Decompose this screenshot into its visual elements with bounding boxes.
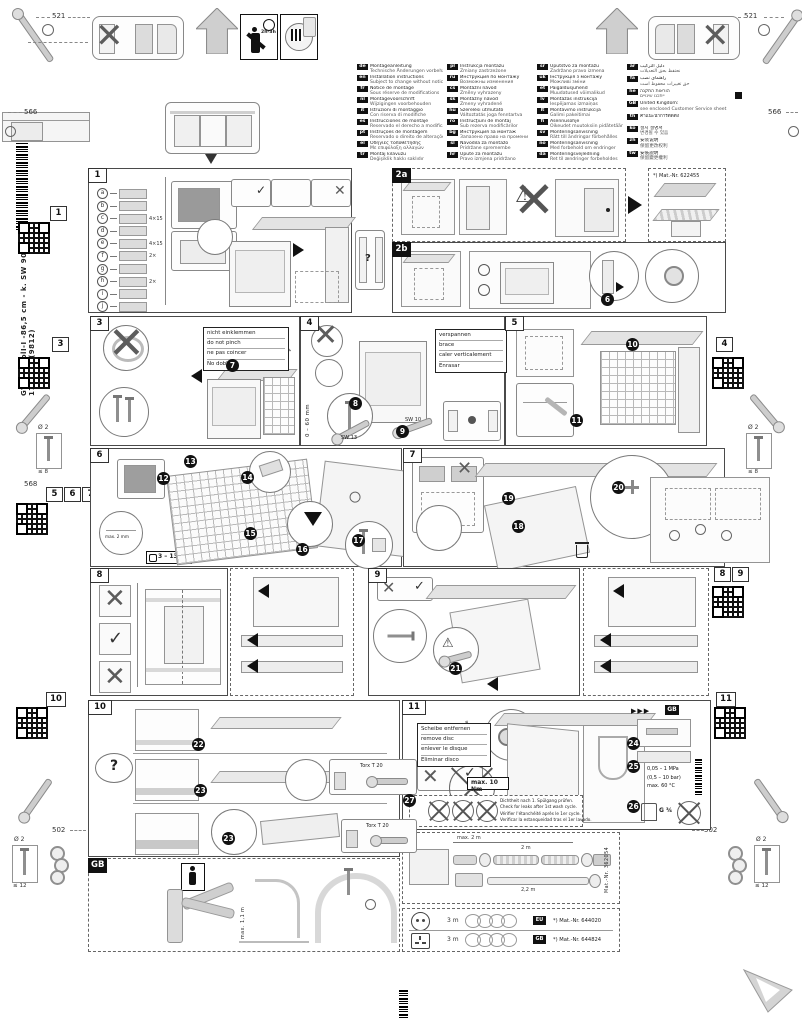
language-code-badge: de <box>357 64 368 70</box>
language-code-badge: hr <box>447 152 458 158</box>
language-code-badge: it <box>357 108 368 114</box>
screw-head-icon <box>758 24 770 36</box>
screw-icon <box>765 851 768 875</box>
language-entry: hrUpute za montažuPravo izmjena pridržan… <box>447 152 533 163</box>
language-lines: Upute za montažuPravo izmjena pridržano <box>460 152 516 163</box>
panel-2a-tab: 2a <box>392 168 411 183</box>
language-entry: daMonteringsvejledningRet til ændringer … <box>537 152 623 163</box>
barcode-vertical <box>16 142 28 230</box>
cube-wrong-1: ✕ <box>99 585 131 617</box>
step-24-marker: 24 <box>627 737 640 750</box>
check-icon: ✓ <box>414 580 425 593</box>
language-note: Změny vyhrazeny <box>460 91 501 96</box>
counter-line <box>3 120 89 121</box>
language-entry: ko설치 설명서변경될 수 있음 <box>627 126 727 138</box>
language-lines: PaigaldusjuhendMuudatused võimalikud <box>550 86 605 97</box>
floor-line <box>239 941 309 943</box>
language-lines: Montavimo instrukcijaGalimi pakeitimai <box>550 108 601 119</box>
dim-dash <box>36 17 50 18</box>
dashed-floor-zone <box>295 271 339 303</box>
cabinet-door <box>226 115 252 147</box>
pressure-line-1: 0,05 – 1 MPa <box>647 765 681 774</box>
screw-head-icon <box>478 284 490 296</box>
barcode-small-bottom <box>399 988 408 1018</box>
step-23b-marker: 23 <box>222 832 235 845</box>
door-profile-right <box>375 237 383 283</box>
leak-note-lines: Dichtheit nach 1. Spülgang prüfen. Check… <box>500 798 592 823</box>
language-note: Zmeny vyhradené <box>460 102 502 107</box>
check-icon: ✓ <box>256 184 266 196</box>
panel-types-box-right: ✕ <box>648 16 740 60</box>
screw-head-icon <box>721 530 732 541</box>
torx-inset-1: Torx T 20 <box>329 759 417 795</box>
language-lines: Instrucciones de montajeReservado el der… <box>370 119 443 130</box>
dim-566-right: 566 <box>768 108 781 116</box>
leader-line <box>110 193 117 194</box>
language-code-badge: GB <box>627 101 638 107</box>
language-lines: Инструкция за монтажЗапазено право на пр… <box>460 130 528 141</box>
leak-line-es: Verificar la estanqueidad tras el 1er la… <box>500 817 592 823</box>
step-7-marker: 7 <box>226 359 239 372</box>
cross-icon: ✕ <box>95 19 124 53</box>
language-lines: Montāžas instrukcijaIespējamas izmaiņas <box>550 97 598 108</box>
language-note: حق تغییرات محفوظ است <box>640 82 689 87</box>
language-note: Reservado el derecho a modificaciones <box>370 124 443 129</box>
corner-detail-inset <box>516 383 574 437</box>
gb-ref-arrows: ▶▶▶ <box>631 707 650 715</box>
warning-triangle-icon: ⚠ <box>442 636 454 651</box>
arrow-icon <box>613 584 624 598</box>
language-entry: deMontageanleitungTechnische Änderungen … <box>357 64 443 75</box>
language-note: Sous réserve de modifications <box>370 91 439 96</box>
language-code-badge: nl <box>357 97 368 103</box>
language-lines: MonteringsvejledningRet til ændringer fo… <box>550 152 618 163</box>
tap-piece-sketch <box>455 873 483 887</box>
leader-line <box>110 269 117 270</box>
wood-panel-icon <box>677 24 695 54</box>
divider-line <box>165 177 166 305</box>
language-lines: MonteringsanvisningMed forbehold om endr… <box>550 141 616 152</box>
screw-dia-label: Ø 2 <box>756 836 766 843</box>
corner-detail-circle <box>211 809 257 855</box>
language-column-1: deMontageanleitungTechnische Änderungen … <box>357 64 443 163</box>
language-note: Zmiany zastrzeżone <box>460 69 506 74</box>
plinth-variant-1 <box>135 709 199 751</box>
language-note: Pridržane spremembe <box>460 146 511 151</box>
detail-circle-feet <box>99 387 149 437</box>
dishwasher-iso <box>207 379 261 439</box>
cross-icon: ✕ <box>108 322 145 366</box>
screw-head-icon <box>478 264 490 276</box>
max-height-label: max. 1,1 m <box>241 887 246 939</box>
qr-scan-box <box>280 14 318 60</box>
language-note: Zadržano pravo izmena <box>550 69 605 74</box>
door-panel-tilted <box>484 486 590 572</box>
margin-tab-5: 5 <box>46 487 63 502</box>
language-lines: Montážní návodZměny vyhrazeny <box>460 86 501 97</box>
language-entry: etPaigaldusjuhendMuudatused võimalikud <box>537 86 623 97</box>
language-note: Subject to change without notice <box>370 80 443 85</box>
screwdriver-icon <box>376 837 408 844</box>
arrow-left-icon <box>487 677 498 691</box>
step-6-marker: 6 <box>601 293 614 306</box>
torx-label-2: Torx T 20 <box>366 823 389 831</box>
corrugated-hose-1 <box>493 855 539 865</box>
hose-dim-top: max. 2 m <box>457 835 481 841</box>
step-15-marker: 15 <box>244 527 257 540</box>
screw-spec-box <box>754 845 780 883</box>
dim-line <box>453 842 573 843</box>
language-entry: tw安裝說明保留變更權利 <box>627 151 727 163</box>
language-code-badge: sr <box>537 64 548 70</box>
depth-label: ≤ 8 <box>748 469 758 475</box>
detail-circle-screw <box>589 251 639 301</box>
dim-521-right: 521 <box>744 12 757 20</box>
ratchet-tool-icon <box>15 12 54 64</box>
language-code-badge: no <box>537 141 548 147</box>
parts-list-row: c4×15 <box>97 208 163 221</box>
language-entry: ukІнструкція з монтажуМожливі зміни <box>537 75 623 86</box>
language-entry: enInstallation instructionsSubject to ch… <box>357 75 443 86</box>
language-code-badge: he <box>627 89 638 95</box>
language-code-badge: cs <box>447 86 458 92</box>
step-11-marker: 11 <box>570 414 583 427</box>
cabinet-interior-sketch <box>650 477 770 563</box>
plinth-variant-3 <box>135 813 199 855</box>
pressure-line-3: max. 60 °C <box>647 782 681 791</box>
plinth-rail-iso-1 <box>210 717 341 729</box>
row-divider <box>409 930 613 931</box>
language-lines: Uputstvo za montažuZadržano pravo izmena <box>550 64 605 75</box>
gb-ref-badge: GB <box>665 705 679 715</box>
language-code-badge: tw <box>627 151 638 157</box>
no-tools-icon <box>677 801 701 825</box>
panel-5: 5 <box>505 316 707 446</box>
washer-stack-icon <box>48 846 68 886</box>
language-note: 변경될 수 있음 <box>640 131 668 136</box>
note-line-fr: ne pas coincer <box>207 349 285 359</box>
screw-dia-label: Ø 2 <box>14 836 24 843</box>
person-warning-box <box>181 863 205 891</box>
dim-502-left: 502 <box>52 826 65 834</box>
dim-566-left: 566 <box>24 108 37 116</box>
dim-dash <box>70 830 86 831</box>
language-entry: fiAsennusohjeOikeudet muutoksiin pidätet… <box>537 119 623 130</box>
installer-time-box: 2h-3h <box>240 14 278 60</box>
cube-wrong-2: ✕ <box>99 661 131 693</box>
arrow-right-icon <box>293 243 304 257</box>
pen-icon <box>544 397 568 417</box>
leader-line <box>110 294 117 295</box>
niche-sketch <box>401 179 455 235</box>
depth-label: ≤ 12 <box>755 883 769 889</box>
language-note: ייתכנו שינויים <box>640 94 670 99</box>
screw-head-icon <box>42 24 54 36</box>
margin-tab-3: 3 <box>52 337 69 352</box>
protection-plate-iso <box>654 183 717 197</box>
panel-8-tab: 8 <box>90 568 109 583</box>
language-entry: roInstrucţiuni de montajSub rezerva modi… <box>447 119 533 130</box>
dim-dash <box>738 17 752 18</box>
language-entry: faراهنمای نصبحق تغییرات محفوظ است <box>627 76 727 88</box>
language-note: Galimi pakeitimai <box>550 113 601 118</box>
qr-code-step567 <box>16 503 48 535</box>
language-lines: راهنمای نصبحق تغییرات محفوظ است <box>640 76 689 87</box>
accessory-mat-number: *) Mat.-Nr. 622455 <box>653 173 699 181</box>
panel-4-tab: 4 <box>300 316 319 331</box>
panel-8-rails-dashed <box>230 568 354 696</box>
parts-list-row: d <box>97 221 163 234</box>
parts-list: abc4×15de4×15f2×gh2×ij <box>97 183 163 309</box>
language-title: คำแนะนำการติดตั้ง <box>640 114 679 119</box>
arrow-left-icon <box>247 633 258 647</box>
row-divider <box>133 753 387 754</box>
qr-mini-icon <box>291 29 303 41</box>
step-26-marker: 26 <box>627 800 640 813</box>
parts-list-row: f2× <box>97 246 163 259</box>
note-line-es: No doblar <box>207 360 285 369</box>
language-lines: הוראות התקנהייתכנו שינויים <box>640 89 670 100</box>
hose-mat-number: Mat.-Nr. 362054 <box>605 845 610 893</box>
part-quantity: 2× <box>149 279 156 285</box>
appliance-top-sketch <box>671 221 701 237</box>
language-lines: Instruções de montagemReservado o direit… <box>370 130 443 141</box>
rail-wrong-frame: ✕ <box>311 179 351 207</box>
language-code-badge: tr <box>357 152 368 158</box>
margin-tab-8: 8 <box>714 567 731 582</box>
panel-3-tab: 3 <box>90 316 109 331</box>
counter-underside-hatched <box>652 209 719 221</box>
brace-note-box: verspannen brace caler verticalement Enr… <box>435 329 507 373</box>
tap-connection-sketch <box>637 719 691 747</box>
cabinet-front-preview <box>165 102 260 154</box>
screwdriver-icon <box>372 778 408 785</box>
fitting-1 <box>453 855 477 865</box>
language-note: Muudatused võimalikud <box>550 91 605 96</box>
leader-line <box>110 206 117 207</box>
dishwasher-iso <box>229 241 291 307</box>
leader-line <box>110 218 117 219</box>
profiled-panel-icon <box>157 24 177 54</box>
language-lines: Инструкция по монтажуВозможны изменения <box>460 75 519 86</box>
panel-2b: 2b <box>392 242 726 313</box>
screw-icon <box>47 439 50 461</box>
language-lines: United Kingdom:see enclosed Customer Ser… <box>640 101 726 112</box>
cord-mat-number-1: *) Mat.-Nr. 644020 <box>553 918 601 926</box>
screw-head-icon <box>669 530 680 541</box>
language-entry: ltMontavimo instrukcijaGalimi pakeitimai <box>537 108 623 119</box>
language-lines: Інструкція з монтажуМожливі зміни <box>550 75 602 86</box>
screw-spec-box <box>36 433 62 469</box>
registration-mark <box>735 92 742 99</box>
language-code-badge: bg <box>447 130 458 136</box>
standpipe-sketch <box>167 889 183 943</box>
detail-circle-side-screw <box>373 609 427 663</box>
language-note: Değişiklik hakkı saklıdır <box>370 157 424 162</box>
clamp-ring-icon <box>479 853 491 867</box>
washer-stack-icon <box>726 846 746 886</box>
door-balance-inset <box>443 401 501 441</box>
screw-spec-box <box>12 845 38 883</box>
language-lines: AsennusohjeOikeudet muutoksiin pidätetää… <box>550 119 623 130</box>
sw13-label: SW 13 <box>341 435 357 443</box>
ratchet-tool-icon <box>21 778 53 820</box>
language-code-badge: sv <box>537 130 548 136</box>
language-entry: skMontážny návodZmeny vyhradené <box>447 97 533 108</box>
language-entry: slNavodila za montažoPridržane spremembe <box>447 141 533 152</box>
thread-label: G ¾ <box>659 807 672 814</box>
margin-tab-9: 9 <box>732 567 749 582</box>
leader-line <box>110 281 117 282</box>
disposal-bin-icon <box>576 545 588 558</box>
language-note: 保留變更權利 <box>640 156 668 161</box>
arrow-icon <box>616 282 624 292</box>
profiled-panel-icon <box>655 24 675 54</box>
language-note: نحتفظ بحق التعديلات <box>640 69 680 74</box>
clip-detail-circle <box>285 759 327 801</box>
detail-circle-grommet <box>645 249 699 303</box>
arrow-up-icon <box>596 8 638 54</box>
language-code-badge: ko <box>627 126 638 132</box>
note-line-en: do not pinch <box>207 339 285 349</box>
torque-label: max. 10 Nm <box>467 777 509 790</box>
arrow-icon <box>258 584 269 598</box>
rail-ok-frame: ✓ <box>231 179 271 207</box>
note-line-de: nicht einklemmen <box>207 329 285 339</box>
cross-icon: ✕ <box>701 19 730 53</box>
screw-dia-label: Ø 2 <box>38 424 48 431</box>
note-line-en: brace <box>439 341 503 351</box>
language-code-badge: el <box>357 141 368 147</box>
language-lines: MonteringsanvisningRätt till ändringar f… <box>550 130 617 141</box>
language-entry: GBUnited Kingdom:see enclosed Customer S… <box>627 101 727 113</box>
language-note: Technische Änderungen vorbehalten <box>370 69 443 74</box>
margin-tab-1: 1 <box>50 206 67 221</box>
niche-sketch <box>401 251 461 307</box>
detail-circle-screws <box>345 521 393 569</box>
crossed-hose-icon-3 <box>476 800 498 822</box>
arrow-left-icon <box>247 659 258 673</box>
language-entry: bgИнструкция за монтажЗапазено право на … <box>447 130 533 141</box>
cabinet-door <box>174 115 200 147</box>
note-line-fr: enlever le disque <box>421 745 487 755</box>
language-note: Reservado o direito de alterações <box>370 135 443 140</box>
margin-tab-6: 6 <box>64 487 81 502</box>
panel-11-tab: 11 <box>402 700 426 715</box>
screw-icon <box>757 439 760 461</box>
language-code-badge: zh <box>627 138 638 144</box>
detail-circle-press <box>287 501 333 547</box>
dishwasher-slot <box>200 115 226 147</box>
cross-slot-icon <box>625 480 639 494</box>
ratchet-tool-icon <box>753 778 785 820</box>
dim-dash <box>8 112 22 113</box>
check-icon: ✓ <box>108 630 123 648</box>
mini-barcode <box>695 759 702 795</box>
door-question-box: ? <box>355 230 385 290</box>
panel-1-tab: 1 <box>88 168 107 183</box>
cross-icon: ✕ <box>104 586 126 612</box>
arrow-up-icon <box>196 8 238 54</box>
duration-label: 2h-3h <box>261 30 276 35</box>
depth-label: ≤ 12 <box>13 883 27 889</box>
sw10-label: SW 10 <box>405 417 421 425</box>
parts-list-row: h2× <box>97 271 163 284</box>
door-template-grid <box>600 351 676 425</box>
cord-mat-number-2: *) Mat.-Nr. 644824 <box>553 937 601 945</box>
screw-head-icon <box>5 126 16 137</box>
language-column-4: arدليل التركيبنحتفظ بحق التعديلاتfaراهنم… <box>627 64 727 163</box>
parts-list-row: a <box>97 183 163 196</box>
language-code-badge: fr <box>357 86 368 92</box>
pinch-note-box: nicht einklemmen do not pinch ne pas coi… <box>203 327 289 371</box>
panel-1: 1 abc4×15de4×15f2×gh2×ij ✓ ✕ <box>88 168 352 313</box>
language-code-badge: th <box>627 114 638 120</box>
step-14-marker: 14 <box>241 471 254 484</box>
panel-10-tab: 10 <box>88 700 112 715</box>
leader-line <box>110 256 117 257</box>
language-entry: arدليل التركيبنحتفظ بحق التعديلات <box>627 64 727 76</box>
disc-note-box: Scheibe entfernen remove disc enlever le… <box>417 723 491 767</box>
dim-568-left: 568 <box>24 480 37 488</box>
panel-6-tab: 6 <box>90 448 109 463</box>
countertop-line <box>170 111 255 114</box>
appliance-mount-sketch <box>469 251 591 309</box>
language-note: Με επιφύλαξη αλλαγών <box>370 146 424 151</box>
leader-line <box>110 306 117 307</box>
language-lines: Montaj kılavuzuDeğişiklik hakkı saklıdır <box>370 152 424 163</box>
hose-piece-sketch <box>637 751 691 763</box>
arrow-left-icon <box>600 659 611 673</box>
cross-icon: ✕ <box>513 175 555 225</box>
part-quantity: 2× <box>149 253 156 259</box>
plinth-board-sketch <box>260 813 340 845</box>
height-range-label: 0 – 60 mm <box>305 391 311 437</box>
language-note: Sub rezerva modificărilor <box>460 124 518 129</box>
screw-head-icon <box>788 126 799 137</box>
arrow-right-icon <box>628 196 642 214</box>
panel-9-tab: 9 <box>368 568 387 583</box>
language-entry: nlMontagevoorschriftWijzigingen voorbeho… <box>357 97 443 108</box>
pivot-dot <box>468 416 476 424</box>
language-lines: MontageanleitungTechnische Änderungen vo… <box>370 64 443 75</box>
dim-dash <box>764 17 784 18</box>
edge-gap-circle: max. 2 mm <box>99 511 143 555</box>
language-lines: Notice de montageSous réserve de modific… <box>370 86 439 97</box>
torque-value: max. 10 Nm <box>471 779 508 793</box>
corrugated-hose-2 <box>541 855 579 865</box>
panel-9-rails-dashed <box>583 568 709 696</box>
language-lines: Instrucţiuni de montajSub rezerva modifi… <box>460 119 518 130</box>
language-entry: plInstrukcja montażuZmiany zastrzeżone <box>447 64 533 75</box>
countertop-iso <box>426 585 577 599</box>
language-entry: srUputstvo za montažuZadržano pravo izme… <box>537 64 623 75</box>
panel-3: 3 ✕ nicht einklemmen do not pinch ne pas… <box>90 316 300 446</box>
leader-line <box>110 243 117 244</box>
parts-list-row: b <box>97 196 163 209</box>
note-line-es: Enrasar <box>439 362 503 371</box>
language-note: 保留更改权利 <box>640 144 668 149</box>
part-icon <box>119 302 147 312</box>
panel-5-tab: 5 <box>505 316 524 331</box>
language-note: Ret til ændringer forbeholdes <box>550 157 618 162</box>
grommet-icon <box>664 266 684 286</box>
part-letter: j <box>97 301 108 312</box>
socket-eu-icon <box>411 912 430 931</box>
countertop-iso <box>581 331 704 345</box>
language-note: Pravo izmjena pridržano <box>460 157 516 162</box>
clamp-screw-icon <box>347 871 350 895</box>
